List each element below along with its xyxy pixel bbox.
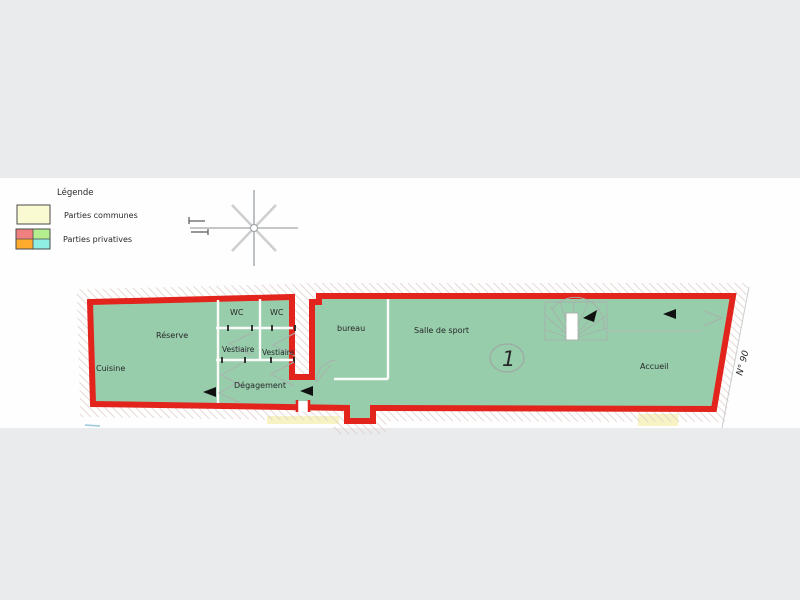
room-label-wc-left: WC <box>230 308 244 317</box>
legend-label-privatives: Parties privatives <box>63 235 132 244</box>
room-label-degagement: Dégagement <box>234 380 286 390</box>
adjacent-parcel-line <box>85 425 100 426</box>
room-label-bureau: bureau <box>337 324 365 333</box>
legend-swatch-communes <box>17 205 50 224</box>
legend-swatch-privatives <box>16 229 50 249</box>
room-label-vestiaire-right: Vestiaire <box>262 348 295 357</box>
floorplan-drawing: Légende Parties communes Parties privati… <box>0 0 800 600</box>
room-label-wc-right: WC <box>270 308 284 317</box>
unit-outline <box>90 296 733 421</box>
legend-label-communes: Parties communes <box>64 211 138 220</box>
floorplan: 1 Cuisine Réserve WC WC Vestiaire Vestia… <box>85 287 752 428</box>
room-label-reserve: Réserve <box>156 330 188 340</box>
room-label-accueil: Accueil <box>640 362 669 371</box>
unit-number: 1 <box>502 347 515 371</box>
entrance-door-gap <box>297 400 309 412</box>
legend-title: Légende <box>57 187 93 198</box>
floorplan-page: Légende Parties communes Parties privati… <box>0 0 800 600</box>
room-label-cuisine: Cuisine <box>96 364 125 373</box>
room-label-vestiaire-left: Vestiaire <box>222 345 255 354</box>
room-label-salle-de-sport: Salle de sport <box>414 326 469 335</box>
